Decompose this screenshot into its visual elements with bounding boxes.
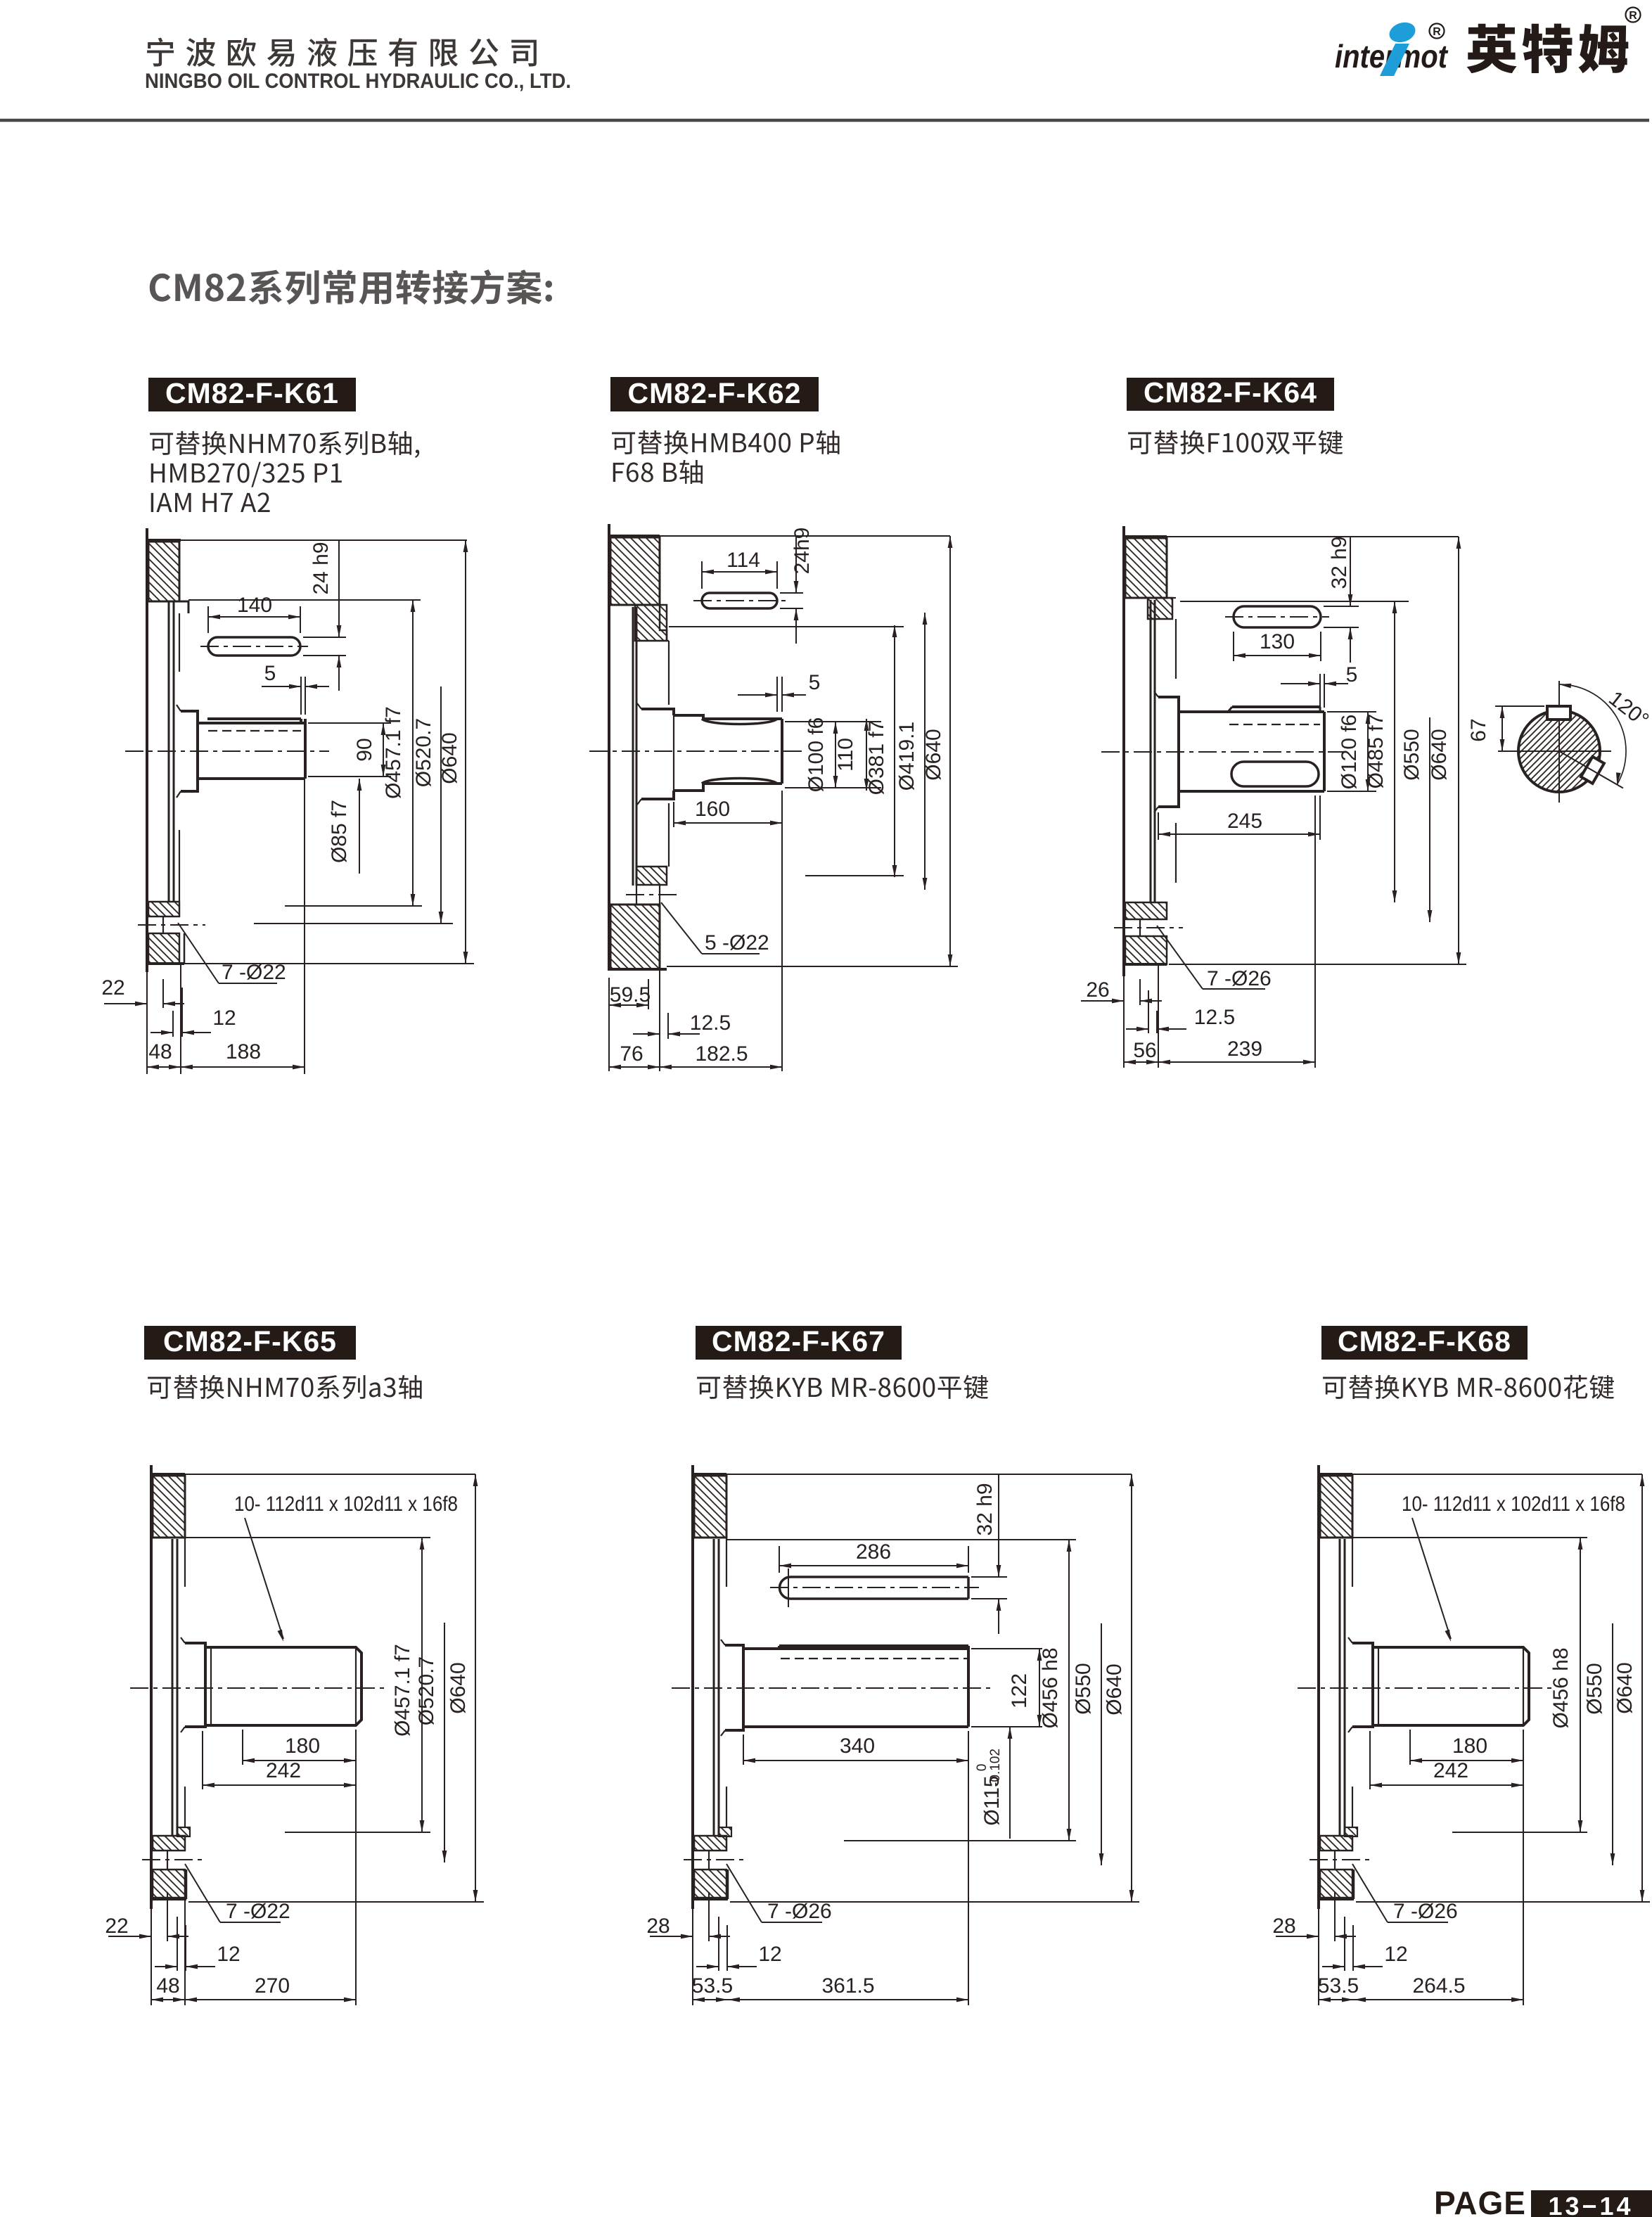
- svg-text:245: 245: [1227, 810, 1262, 833]
- svg-text:Ø457.1 f7: Ø457.1 f7: [382, 706, 405, 799]
- svg-text:PAGE: PAGE: [1434, 2185, 1526, 2217]
- svg-text:56: 56: [1133, 1039, 1156, 1062]
- svg-text:Ø85 f7: Ø85 f7: [328, 800, 351, 863]
- svg-text:Ø640: Ø640: [1428, 729, 1451, 780]
- svg-text:90: 90: [353, 738, 376, 761]
- svg-text:242: 242: [266, 1759, 301, 1782]
- svg-text:114: 114: [726, 549, 760, 572]
- svg-text:5: 5: [1346, 663, 1358, 686]
- svg-text:CM82-F-K64: CM82-F-K64: [1144, 376, 1317, 409]
- svg-text:5: 5: [264, 662, 276, 685]
- svg-text:5: 5: [809, 671, 821, 694]
- svg-text:28: 28: [1272, 1915, 1295, 1938]
- svg-text:7 -Ø22: 7 -Ø22: [226, 1900, 290, 1923]
- svg-text:R: R: [1433, 26, 1441, 38]
- svg-text:Ø640: Ø640: [1613, 1662, 1637, 1713]
- svg-text:160: 160: [695, 798, 730, 821]
- svg-text:Ø640: Ø640: [1103, 1663, 1126, 1715]
- svg-text:12.5: 12.5: [1194, 1006, 1235, 1029]
- svg-text:CM82-F-K61: CM82-F-K61: [165, 377, 339, 409]
- svg-text:32 h9: 32 h9: [1328, 536, 1351, 589]
- svg-text:NINGBO OIL CONTROL HYDRAULIC C: NINGBO OIL CONTROL HYDRAULIC CO., LTD.: [145, 70, 571, 93]
- svg-text:Ø550: Ø550: [1072, 1663, 1095, 1714]
- svg-text:10- 112d11 x 102d11 x 16f8: 10- 112d11 x 102d11 x 16f8: [234, 1493, 458, 1516]
- svg-text:-0.102: -0.102: [988, 1749, 1003, 1787]
- svg-text:24 h9: 24 h9: [309, 542, 333, 594]
- svg-text:22: 22: [101, 976, 124, 999]
- svg-text:Ø419.1: Ø419.1: [895, 722, 918, 791]
- svg-text:361.5: 361.5: [821, 1974, 874, 1998]
- svg-text:12.5: 12.5: [690, 1011, 731, 1035]
- svg-text:22: 22: [105, 1915, 128, 1938]
- svg-text:12: 12: [212, 1007, 236, 1030]
- svg-text:5 -Ø22: 5 -Ø22: [705, 931, 769, 954]
- svg-text:0: 0: [975, 1764, 990, 1772]
- svg-text:CM82-F-K65: CM82-F-K65: [163, 1325, 337, 1357]
- svg-text:7 -Ø26: 7 -Ø26: [1393, 1900, 1458, 1923]
- svg-text:180: 180: [285, 1734, 320, 1758]
- svg-text:242: 242: [1433, 1759, 1468, 1782]
- svg-text:67: 67: [1467, 718, 1490, 741]
- svg-text:CM82-F-K67: CM82-F-K67: [712, 1325, 885, 1357]
- svg-text:140: 140: [237, 594, 272, 617]
- svg-text:Ø381 f7: Ø381 f7: [865, 720, 888, 796]
- svg-text:Ø100 f6: Ø100 f6: [805, 717, 828, 793]
- svg-text:Ø457.1 f7: Ø457.1 f7: [391, 1644, 414, 1737]
- svg-text:270: 270: [255, 1974, 290, 1998]
- svg-text:7 -Ø26: 7 -Ø26: [767, 1900, 832, 1923]
- svg-text:Ø550: Ø550: [1583, 1663, 1606, 1714]
- svg-text:48: 48: [148, 1040, 172, 1063]
- svg-text:48: 48: [156, 1974, 179, 1998]
- svg-text:12: 12: [758, 1943, 781, 1966]
- svg-text:188: 188: [226, 1040, 261, 1063]
- svg-text:R: R: [1629, 10, 1637, 22]
- svg-text:340: 340: [840, 1734, 875, 1758]
- svg-text:28: 28: [646, 1915, 670, 1938]
- svg-text:264.5: 264.5: [1412, 1974, 1465, 1998]
- svg-text:286: 286: [856, 1540, 891, 1564]
- svg-text:Ø640: Ø640: [438, 732, 461, 784]
- svg-text:32 h9: 32 h9: [973, 1483, 997, 1535]
- svg-text:76: 76: [620, 1042, 643, 1066]
- svg-text:59.5: 59.5: [610, 983, 651, 1007]
- svg-text:Ø456 h8: Ø456 h8: [1039, 1647, 1062, 1728]
- svg-text:Ø520.7: Ø520.7: [415, 1656, 438, 1725]
- svg-text:24h9: 24h9: [790, 528, 814, 575]
- svg-text:12: 12: [217, 1943, 240, 1966]
- svg-text:239: 239: [1227, 1037, 1262, 1061]
- svg-text:122: 122: [1008, 1673, 1031, 1708]
- svg-text:110: 110: [834, 738, 857, 772]
- svg-text:12: 12: [1384, 1943, 1407, 1966]
- svg-text:26: 26: [1086, 978, 1109, 1002]
- svg-text:Ø485 f7: Ø485 f7: [1364, 714, 1388, 789]
- svg-text:Ø640: Ø640: [922, 729, 945, 780]
- svg-text:182.5: 182.5: [695, 1042, 748, 1066]
- svg-text:7 -Ø22: 7 -Ø22: [222, 961, 286, 984]
- svg-text:7 -Ø26: 7 -Ø26: [1207, 967, 1272, 990]
- svg-text:53.5: 53.5: [1318, 1974, 1359, 1998]
- svg-text:Ø520.7: Ø520.7: [412, 718, 435, 787]
- svg-text:Ø456 h8: Ø456 h8: [1549, 1647, 1573, 1728]
- svg-text:180: 180: [1452, 1734, 1487, 1758]
- svg-text:CM82-F-K68: CM82-F-K68: [1338, 1325, 1511, 1357]
- svg-text:Ø550: Ø550: [1400, 729, 1423, 780]
- svg-text:Ø120 f6: Ø120 f6: [1338, 715, 1361, 790]
- svg-text:53.5: 53.5: [692, 1974, 733, 1998]
- svg-text:13−14: 13−14: [1548, 2192, 1633, 2217]
- svg-text:10- 112d11 x 102d11 x 16f8: 10- 112d11 x 102d11 x 16f8: [1402, 1493, 1625, 1516]
- svg-text:Ø640: Ø640: [447, 1662, 470, 1713]
- svg-text:130: 130: [1260, 630, 1295, 653]
- svg-text:CM82-F-K62: CM82-F-K62: [628, 377, 802, 409]
